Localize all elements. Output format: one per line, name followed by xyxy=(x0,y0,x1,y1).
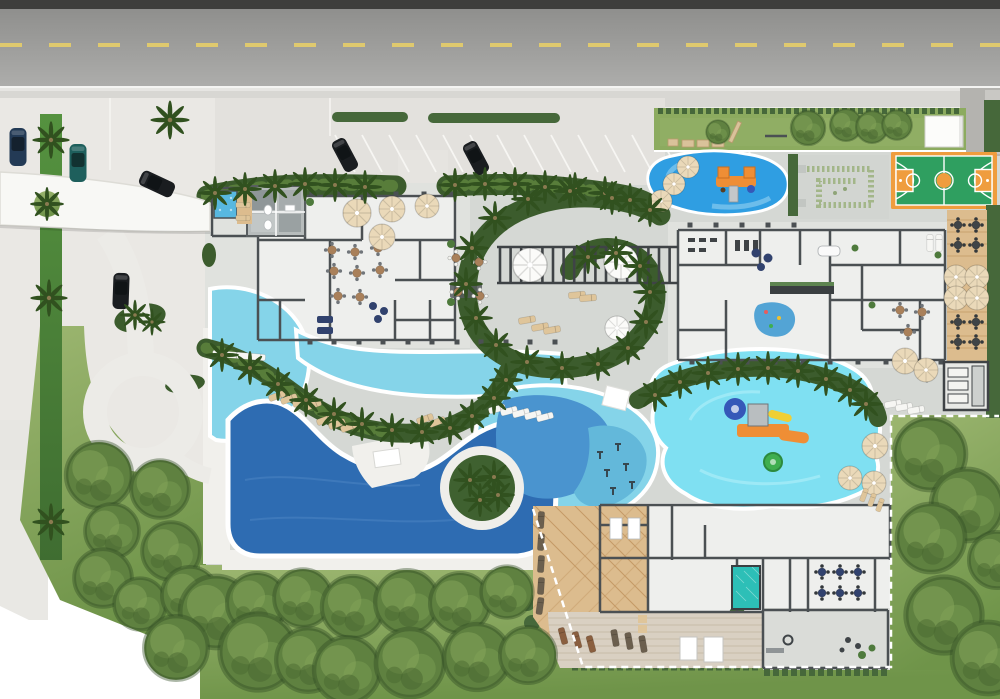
car xyxy=(10,128,27,166)
road xyxy=(0,0,1000,108)
basketball-court xyxy=(891,152,997,209)
hedge-garden xyxy=(795,155,889,219)
garden-pergola xyxy=(944,362,988,410)
car xyxy=(112,273,129,310)
car xyxy=(70,144,87,182)
plunge-pool xyxy=(732,566,760,609)
site-plan-stage xyxy=(0,0,1000,699)
event-patio xyxy=(763,608,890,670)
service-shed xyxy=(925,116,963,147)
